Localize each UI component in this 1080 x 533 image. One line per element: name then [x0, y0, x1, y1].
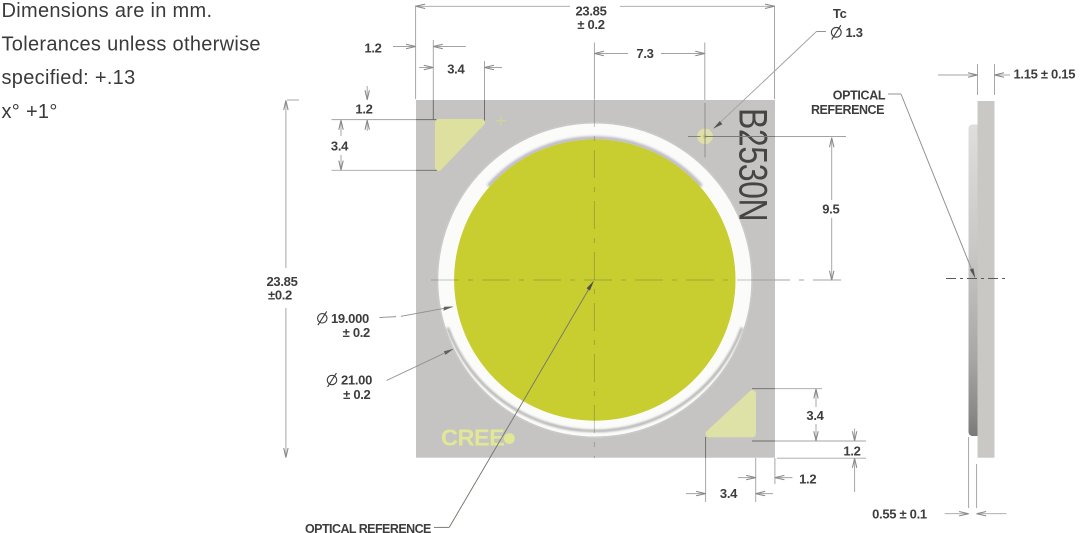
svg-text:CREE: CREE — [441, 425, 504, 451]
svg-text:3.4: 3.4 — [806, 408, 824, 423]
svg-text:1.2: 1.2 — [355, 102, 372, 117]
svg-text:3.4: 3.4 — [720, 486, 738, 501]
svg-text:± 0.2: ± 0.2 — [343, 325, 370, 340]
svg-text:OPTICAL: OPTICAL — [833, 88, 886, 102]
svg-text:±0.2: ±0.2 — [268, 288, 292, 303]
svg-text:1.2: 1.2 — [843, 444, 860, 459]
svg-text:B2530N: B2530N — [731, 108, 776, 221]
svg-text:Dimensions are in mm.: Dimensions are in mm. — [2, 0, 213, 22]
svg-text:1.2: 1.2 — [364, 41, 381, 56]
svg-text:9.5: 9.5 — [822, 202, 839, 217]
svg-text:OPTICAL REFERENCE: OPTICAL REFERENCE — [305, 522, 431, 533]
svg-text:1.2: 1.2 — [799, 471, 816, 486]
svg-text:19.000: 19.000 — [331, 311, 369, 326]
svg-text:± 0.2: ± 0.2 — [577, 17, 604, 32]
svg-text:± 0.2: ± 0.2 — [343, 387, 370, 402]
svg-text:specified: +.13: specified: +.13 — [2, 67, 136, 89]
svg-text:21.00: 21.00 — [341, 373, 372, 388]
svg-text:Tc: Tc — [833, 6, 847, 21]
svg-text:3.4: 3.4 — [331, 139, 349, 154]
svg-text:0.55 ± 0.1: 0.55 ± 0.1 — [872, 506, 927, 521]
svg-text:3.4: 3.4 — [447, 62, 465, 77]
svg-text:7.3: 7.3 — [636, 46, 653, 61]
svg-text:Tolerances unless otherwise: Tolerances unless otherwise — [2, 34, 261, 56]
svg-text:1.15 ± 0.15: 1.15 ± 0.15 — [1014, 67, 1076, 82]
svg-text:x° +1°: x° +1° — [2, 101, 58, 123]
svg-text:1.3: 1.3 — [846, 25, 863, 40]
svg-text:REFERENCE: REFERENCE — [811, 103, 884, 117]
